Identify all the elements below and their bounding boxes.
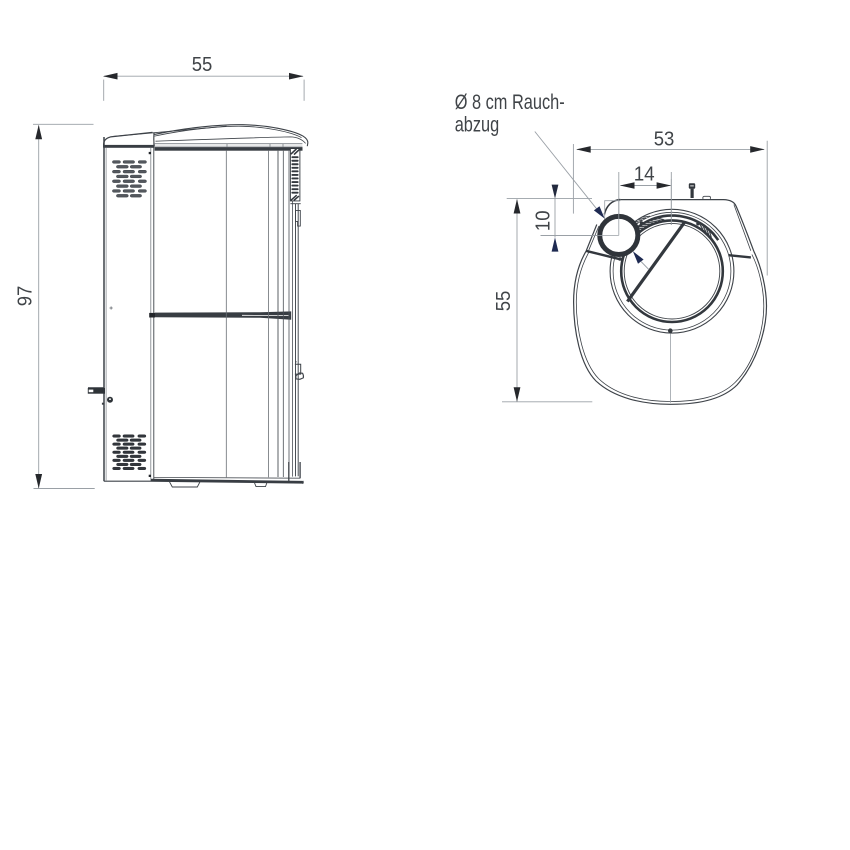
svg-text:55: 55 <box>493 291 515 312</box>
svg-text:Ø 8 cm Rauch-: Ø 8 cm Rauch- <box>455 91 565 114</box>
svg-text:53: 53 <box>654 128 675 150</box>
svg-text:14: 14 <box>634 163 655 185</box>
svg-text:97: 97 <box>15 286 37 307</box>
svg-text:abzug: abzug <box>455 114 500 137</box>
svg-text:55: 55 <box>192 54 213 76</box>
svg-text:10: 10 <box>533 211 555 232</box>
